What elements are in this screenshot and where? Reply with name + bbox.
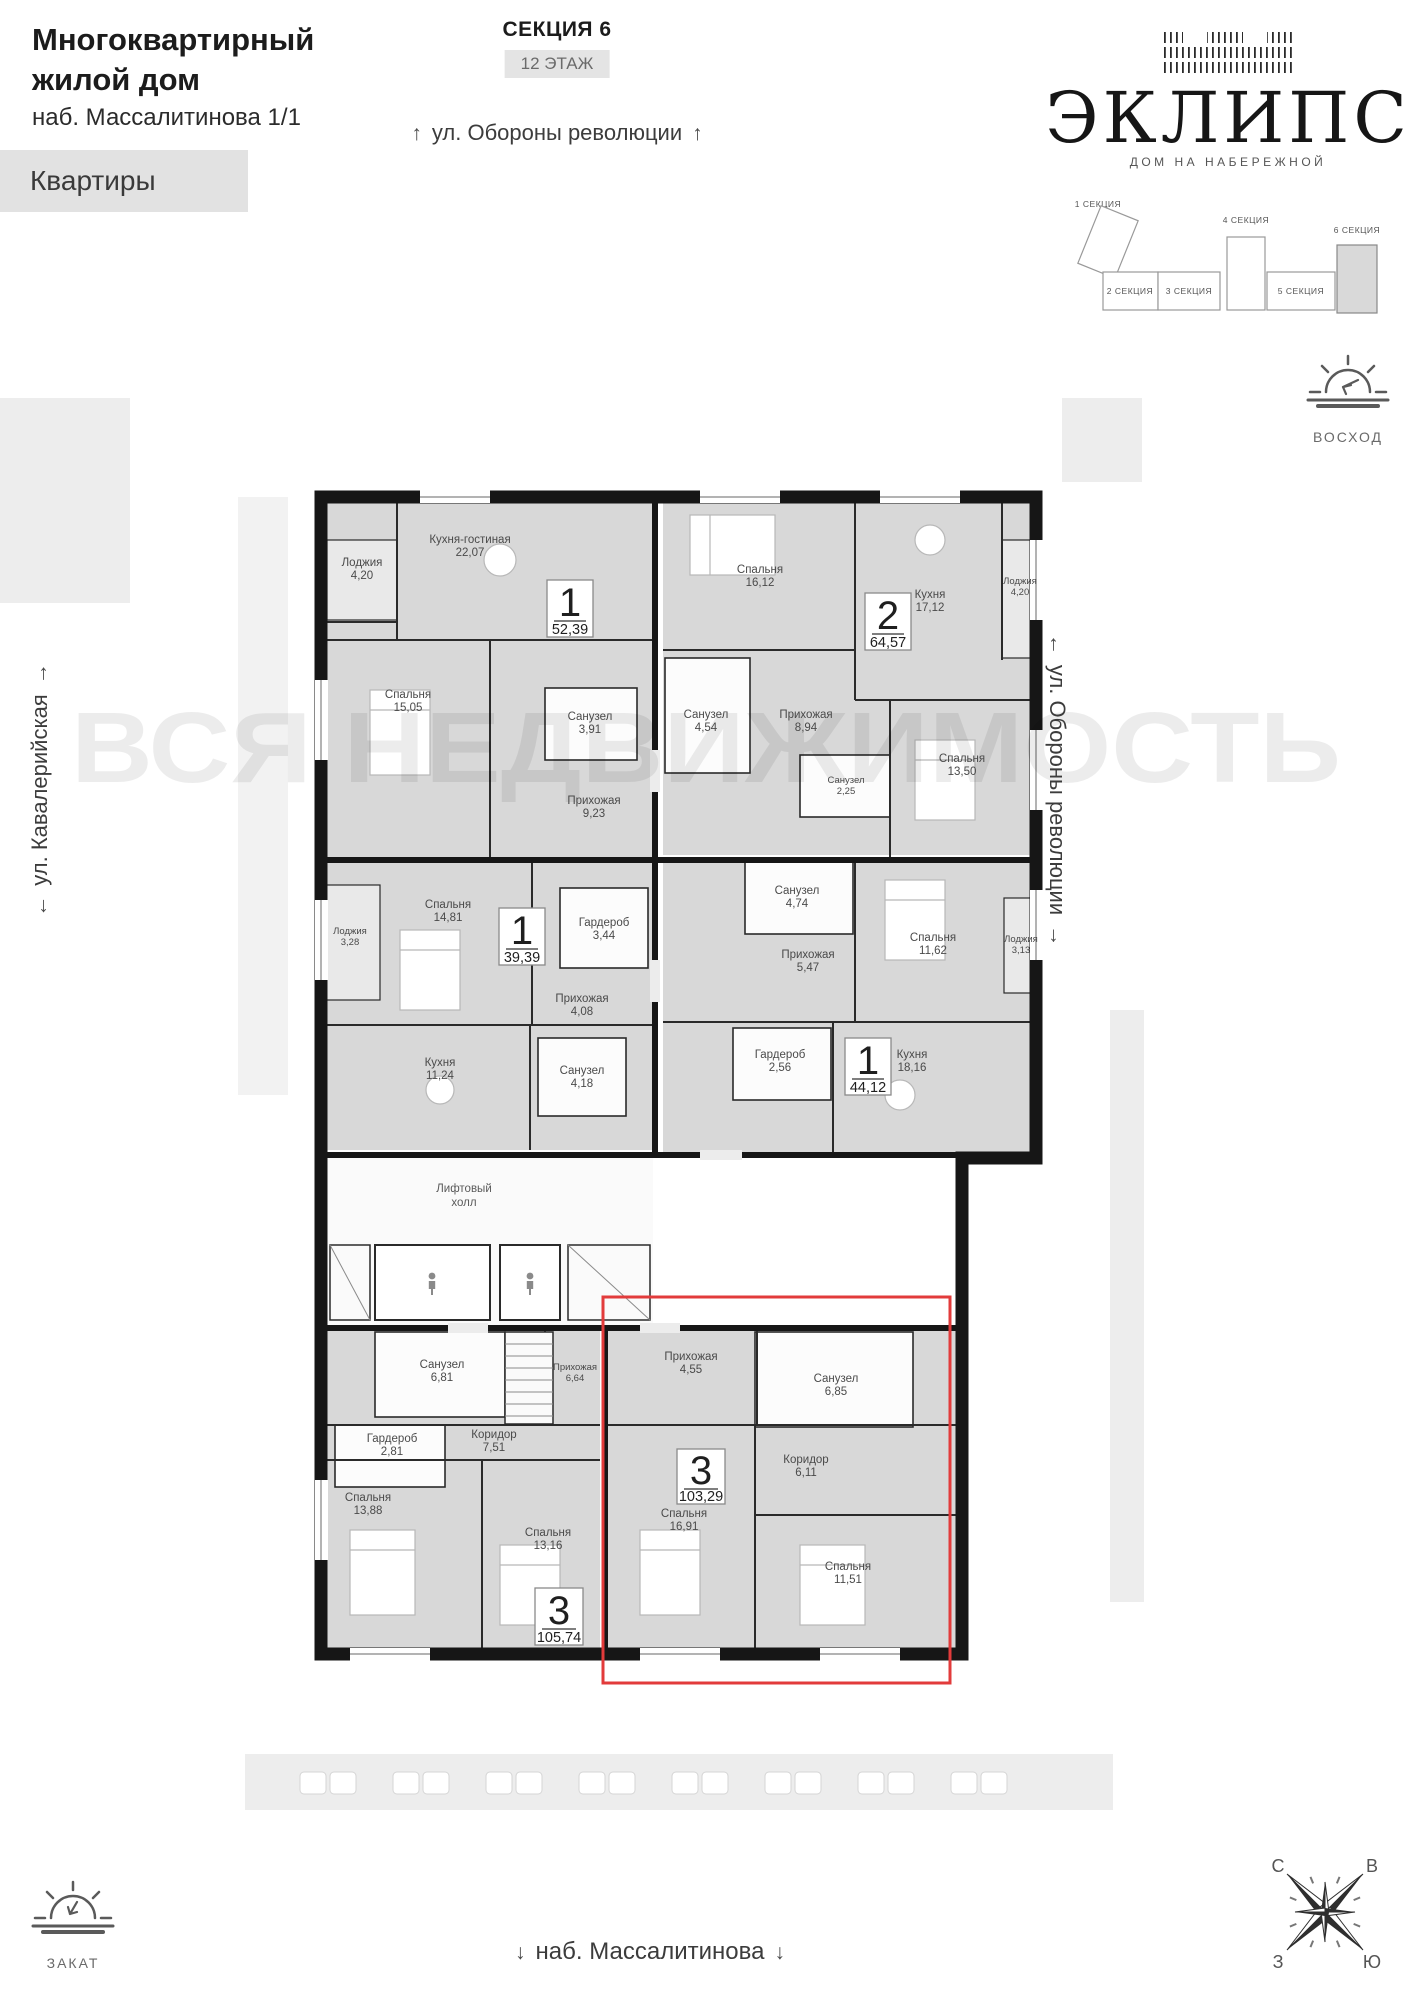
room-label: Спальня — [910, 932, 956, 944]
room-label: Санузел — [814, 1373, 859, 1385]
svg-text:13,50: 13,50 — [948, 766, 977, 778]
svg-text:11,62: 11,62 — [919, 945, 947, 957]
svg-text:3,28: 3,28 — [341, 937, 360, 948]
apartment-badge[interactable]: 1 52,39 — [547, 580, 593, 638]
stairs — [505, 1332, 553, 1424]
logo-tagline: ДОМ НА НАБЕРЕЖНОЙ — [1130, 154, 1327, 169]
room-label: Санузел — [420, 1359, 465, 1371]
svg-text:6,85: 6,85 — [825, 1386, 847, 1398]
room-label: Прихожая — [781, 949, 834, 961]
right-arrow-icon: → — [1045, 915, 1068, 956]
svg-text:7,51: 7,51 — [483, 1442, 505, 1454]
svg-text:6,81: 6,81 — [431, 1372, 453, 1384]
svg-text:18,16: 18,16 — [898, 1062, 927, 1074]
room-label: Санузел — [568, 711, 613, 723]
sunset-label: ЗАКАТ — [47, 1955, 100, 1971]
svg-text:6,64: 6,64 — [566, 1373, 585, 1384]
up-arrow-icon: ↑ — [401, 122, 432, 145]
svg-text:3 СЕКЦИЯ: 3 СЕКЦИЯ — [1166, 286, 1212, 296]
svg-text:11,51: 11,51 — [834, 1574, 862, 1586]
up-arrow-icon: ↑ — [682, 122, 713, 145]
svg-text:5,47: 5,47 — [797, 962, 819, 974]
compass-south: Ю — [1363, 1952, 1381, 1972]
svg-text:6 СЕКЦИЯ: 6 СЕКЦИЯ — [1334, 225, 1380, 235]
sections-diagram: 1 СЕКЦИЯ 2 СЕКЦИЯ 3 СЕКЦИЯ 4 СЕКЦИЯ 5 СЕ… — [1075, 199, 1380, 313]
apartment-badge[interactable]: 3 105,74 — [535, 1588, 583, 1646]
svg-text:17,12: 17,12 — [916, 602, 945, 614]
room-label: Прихожая — [664, 1351, 717, 1363]
svg-text:2,81: 2,81 — [381, 1446, 403, 1458]
svg-text:3: 3 — [690, 1449, 712, 1493]
street-label-left: ←ул. Кавалерийская→ — [27, 653, 53, 926]
left-arrow-icon: ← — [29, 886, 52, 927]
street-label-top: ↑ул. Обороны революции↑ — [401, 120, 712, 146]
svg-text:105,74: 105,74 — [537, 1630, 581, 1646]
page: ВСЯ НЕДВИЖИМОСТЬ Лоджия 4,20 Кухня-гости… — [0, 0, 1412, 2000]
room-label: Прихожая — [553, 1362, 597, 1373]
svg-text:64,57: 64,57 — [870, 635, 906, 651]
svg-text:8,94: 8,94 — [795, 722, 818, 734]
apartment-badge[interactable]: 1 44,12 — [845, 1038, 891, 1096]
room-label: Санузел — [827, 775, 864, 786]
room-label: Спальня — [661, 1508, 707, 1520]
svg-text:4 СЕКЦИЯ: 4 СЕКЦИЯ — [1223, 215, 1269, 225]
down-arrow-icon: ↓ — [764, 1941, 795, 1964]
svg-text:3,91: 3,91 — [579, 724, 601, 736]
svg-text:52,39: 52,39 — [552, 622, 588, 638]
room-label: Прихожая — [555, 993, 608, 1005]
room-label: Санузел — [684, 709, 729, 721]
svg-text:11,24: 11,24 — [426, 1070, 455, 1082]
apartment-badge[interactable]: 3 103,29 — [677, 1449, 725, 1505]
room-label: Кухня — [897, 1049, 928, 1061]
compass-west: З — [1273, 1952, 1284, 1972]
room-label: Кухня — [425, 1057, 456, 1069]
room-label: Лоджия — [333, 926, 367, 937]
svg-text:22,07: 22,07 — [456, 547, 485, 559]
svg-text:16,12: 16,12 — [746, 577, 775, 589]
svg-text:4,08: 4,08 — [571, 1006, 593, 1018]
svg-text:16,91: 16,91 — [670, 1521, 699, 1533]
street-label-right: ←ул. Обороны революции→ — [1044, 624, 1070, 956]
svg-text:2 СЕКЦИЯ: 2 СЕКЦИЯ — [1107, 286, 1153, 296]
svg-text:2: 2 — [877, 594, 899, 638]
svg-text:4,55: 4,55 — [680, 1364, 702, 1376]
room-label: Прихожая — [567, 795, 620, 807]
svg-text:13,16: 13,16 — [534, 1540, 563, 1552]
down-arrow-icon: ↓ — [505, 1941, 536, 1964]
compass-north: С — [1272, 1856, 1285, 1876]
room-label: Спальня — [737, 564, 783, 576]
room-label: Коридор — [783, 1454, 828, 1466]
svg-text:14,81: 14,81 — [434, 912, 463, 924]
street-label-bottom: ↓наб. Массалитинова↓ — [505, 1938, 795, 1966]
svg-text:4,74: 4,74 — [786, 898, 809, 910]
room-label: Санузел — [775, 885, 820, 897]
svg-text:15,05: 15,05 — [394, 702, 423, 714]
svg-text:9,23: 9,23 — [583, 808, 605, 820]
svg-text:3,44: 3,44 — [593, 930, 616, 942]
sunset-icon — [33, 1882, 113, 1932]
room-label: Гардероб — [755, 1049, 806, 1061]
room-label: Спальня — [939, 753, 985, 765]
svg-text:2,56: 2,56 — [769, 1062, 791, 1074]
left-arrow-icon: ← — [1045, 624, 1068, 665]
room-label: Лоджия — [342, 557, 383, 569]
logo-pattern-icon — [1162, 32, 1295, 73]
section-title: СЕКЦИЯ 6 — [502, 18, 611, 42]
floor-badge[interactable]: 12 ЭТАЖ — [505, 50, 610, 78]
svg-text:4,20: 4,20 — [351, 570, 373, 582]
apartment-badge[interactable]: 1 39,39 — [499, 908, 545, 966]
floor-plan: ВСЯ НЕДВИЖИМОСТЬ Лоджия 4,20 Кухня-гости… — [0, 0, 1412, 2000]
svg-text:1: 1 — [559, 581, 581, 625]
room-label: Санузел — [560, 1065, 605, 1077]
svg-text:1: 1 — [511, 909, 533, 953]
svg-text:103,29: 103,29 — [679, 1489, 723, 1505]
room-label: Спальня — [425, 899, 471, 911]
apartment-badge[interactable]: 2 64,57 — [865, 593, 911, 651]
room-label: Кухня-гостиная — [429, 534, 510, 546]
room-label: Кухня — [915, 589, 946, 601]
room-label: Лоджия — [1003, 576, 1037, 587]
svg-text:44,12: 44,12 — [850, 1080, 886, 1096]
logo: ЭКЛИПС ДОМ НА НАБЕРЕЖНОЙ — [1045, 32, 1411, 169]
svg-text:2,25: 2,25 — [837, 786, 856, 797]
svg-text:4,54: 4,54 — [695, 722, 718, 734]
right-arrow-icon: → — [29, 653, 52, 694]
svg-text:13,88: 13,88 — [354, 1505, 383, 1517]
svg-text:3: 3 — [548, 1589, 570, 1633]
svg-text:1 СЕКЦИЯ: 1 СЕКЦИЯ — [1075, 199, 1121, 209]
room-label: Коридор — [471, 1429, 516, 1441]
svg-text:6,11: 6,11 — [795, 1467, 817, 1479]
logo-name: ЭКЛИПС — [1045, 77, 1411, 159]
compass-icon: С В З Ю — [1272, 1856, 1382, 1972]
room-label: Спальня — [385, 689, 431, 701]
svg-text:1: 1 — [857, 1039, 879, 1083]
svg-text:3,13: 3,13 — [1012, 945, 1031, 956]
sunrise-icon — [1308, 356, 1388, 406]
building-address: наб. Массалитинова 1/1 — [32, 104, 301, 132]
svg-text:4,18: 4,18 — [571, 1078, 593, 1090]
room-label: Гардероб — [367, 1433, 418, 1445]
room-label: Спальня — [345, 1492, 391, 1504]
apartments-tab[interactable]: Квартиры — [0, 150, 248, 212]
compass-east: В — [1366, 1856, 1378, 1876]
svg-text:39,39: 39,39 — [504, 950, 540, 966]
room-label: Спальня — [525, 1527, 571, 1539]
lift-hall-label: Лифтовый — [436, 1183, 492, 1195]
svg-text:4,20: 4,20 — [1011, 587, 1030, 598]
room-label: Спальня — [825, 1561, 871, 1573]
svg-text:5 СЕКЦИЯ: 5 СЕКЦИЯ — [1278, 286, 1324, 296]
room-label: Прихожая — [779, 709, 832, 721]
page-title: Многоквартирный жилой дом — [32, 20, 314, 99]
sunrise-label: ВОСХОД — [1313, 429, 1383, 445]
svg-text:холл: холл — [451, 1197, 476, 1209]
room-label: Гардероб — [579, 917, 630, 929]
room-label: Лоджия — [1004, 934, 1038, 945]
